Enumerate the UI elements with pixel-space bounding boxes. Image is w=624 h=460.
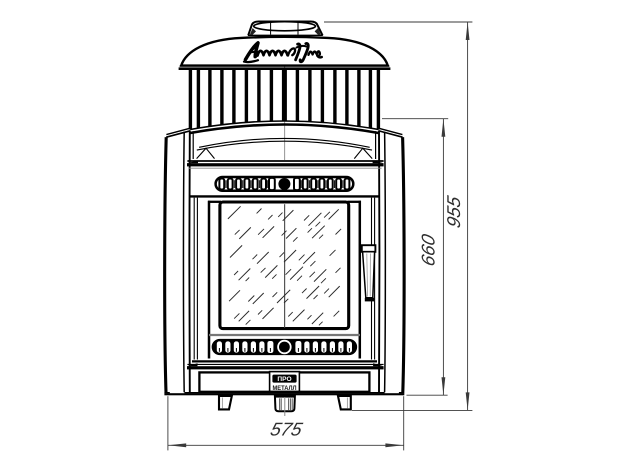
svg-text:ПРО: ПРО (277, 376, 291, 383)
svg-text:МЕТАЛЛ: МЕТАЛЛ (273, 385, 297, 392)
svg-text:575: 575 (268, 419, 305, 440)
svg-text:660: 660 (418, 232, 439, 269)
svg-text:955: 955 (443, 193, 464, 230)
